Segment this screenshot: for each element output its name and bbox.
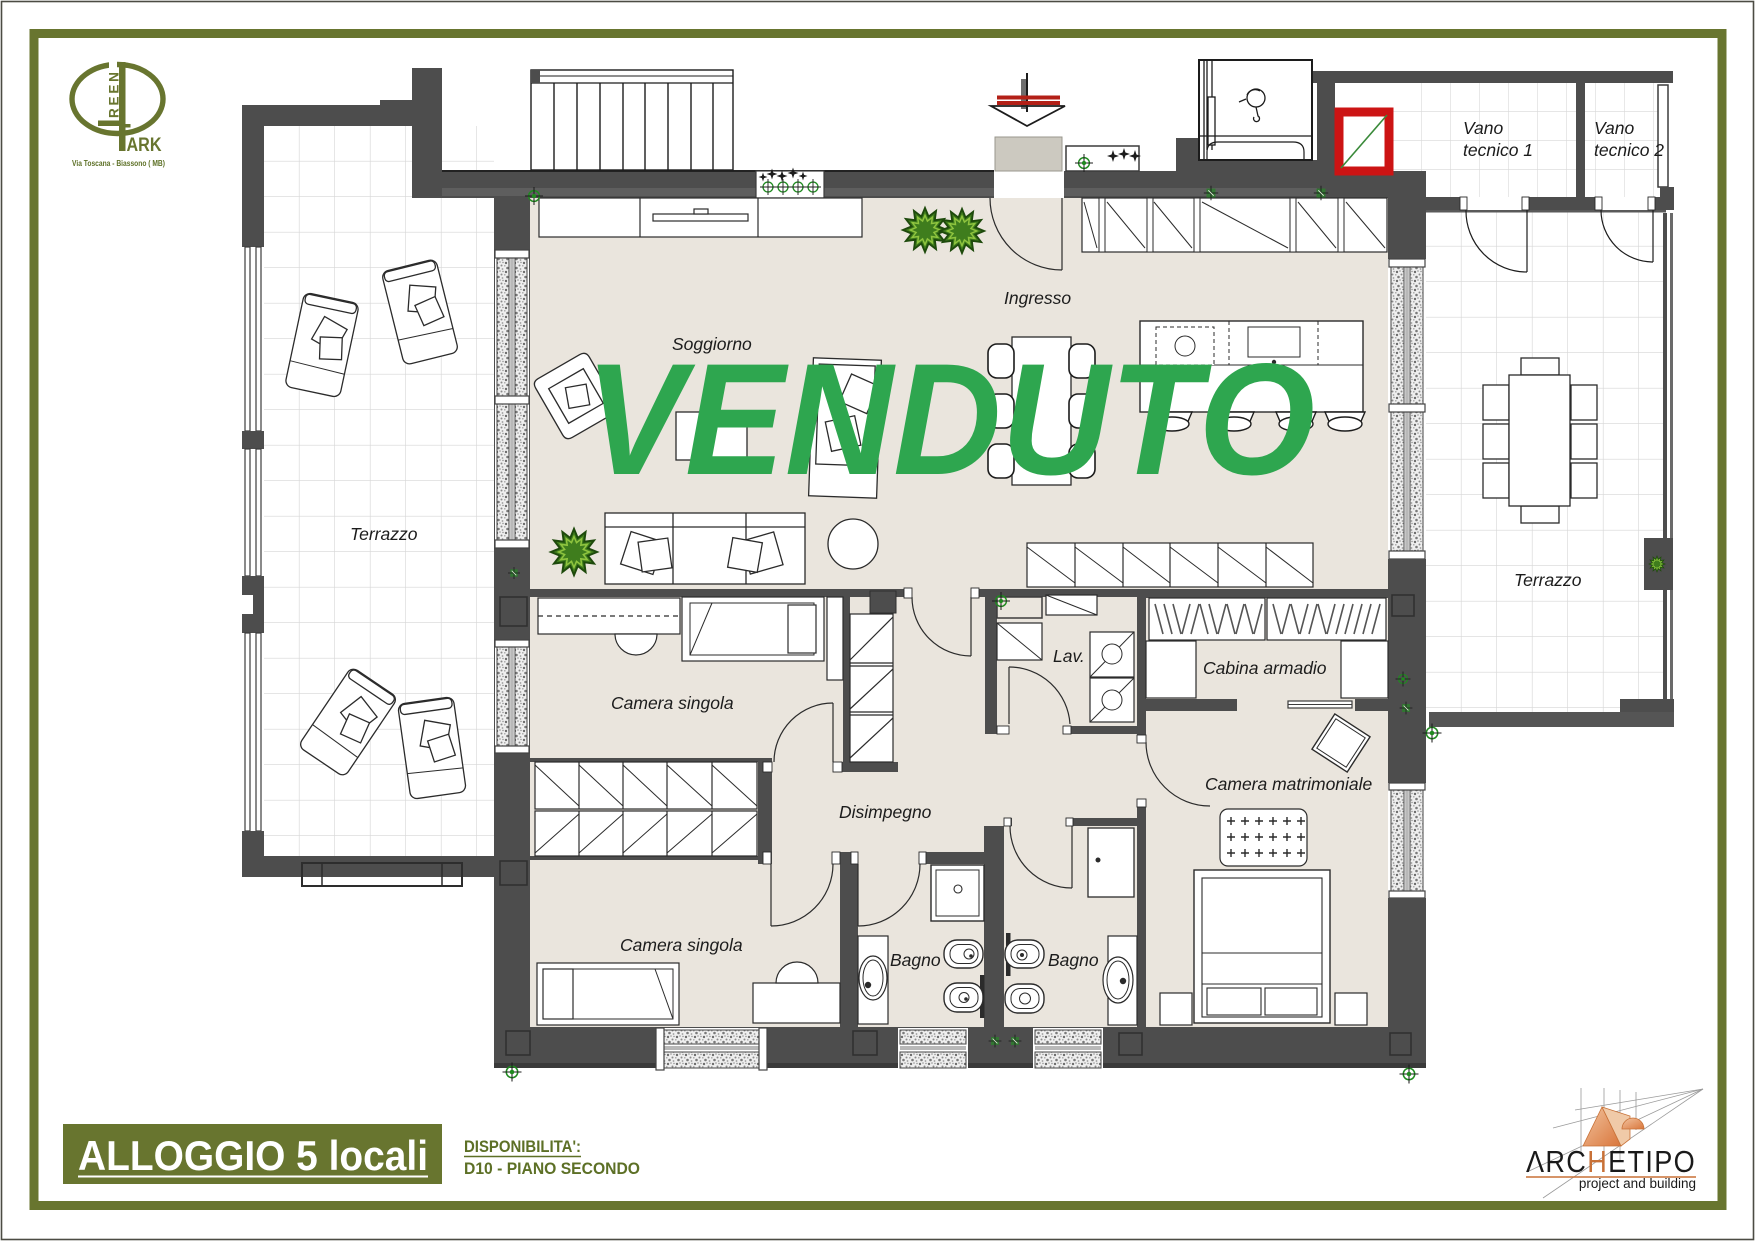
svg-text:Bagno: Bagno (1048, 950, 1099, 970)
svg-text:Terrazzo: Terrazzo (1514, 570, 1582, 590)
svg-text:ARK: ARK (127, 135, 162, 156)
svg-text:ALLOGGIO 5 locali: ALLOGGIO 5 locali (78, 1132, 428, 1179)
svg-text:Disimpegno: Disimpegno (839, 802, 932, 822)
svg-text:D10 - PIANO SECONDO: D10 - PIANO SECONDO (464, 1160, 640, 1178)
svg-text:ΛRCHETIPO: ΛRCHETIPO (1526, 1144, 1696, 1179)
svg-text:Ingresso: Ingresso (1004, 288, 1071, 308)
svg-text:Camera singola: Camera singola (611, 693, 734, 713)
svg-text:Cabina armadio: Cabina armadio (1203, 658, 1327, 678)
svg-text:Vano: Vano (1594, 118, 1634, 138)
svg-text:Bagno: Bagno (890, 950, 941, 970)
svg-text:Camera matrimoniale: Camera matrimoniale (1205, 774, 1373, 794)
svg-text:Terrazzo: Terrazzo (350, 524, 418, 544)
svg-text:Vano: Vano (1463, 118, 1503, 138)
svg-text:tecnico 1: tecnico 1 (1463, 140, 1533, 160)
svg-text:Via Toscana - Biassono ( MB): Via Toscana - Biassono ( MB) (72, 158, 165, 168)
svg-text:VENDUTO: VENDUTO (585, 330, 1315, 508)
svg-text:REEN: REEN (107, 69, 122, 118)
svg-text:Lav.: Lav. (1053, 646, 1085, 666)
svg-text:tecnico 2: tecnico 2 (1594, 140, 1664, 160)
svg-text:DISPONIBILITA':: DISPONIBILITA': (464, 1138, 581, 1156)
svg-text:project and building: project and building (1579, 1176, 1696, 1191)
svg-text:Camera singola: Camera singola (620, 935, 743, 955)
